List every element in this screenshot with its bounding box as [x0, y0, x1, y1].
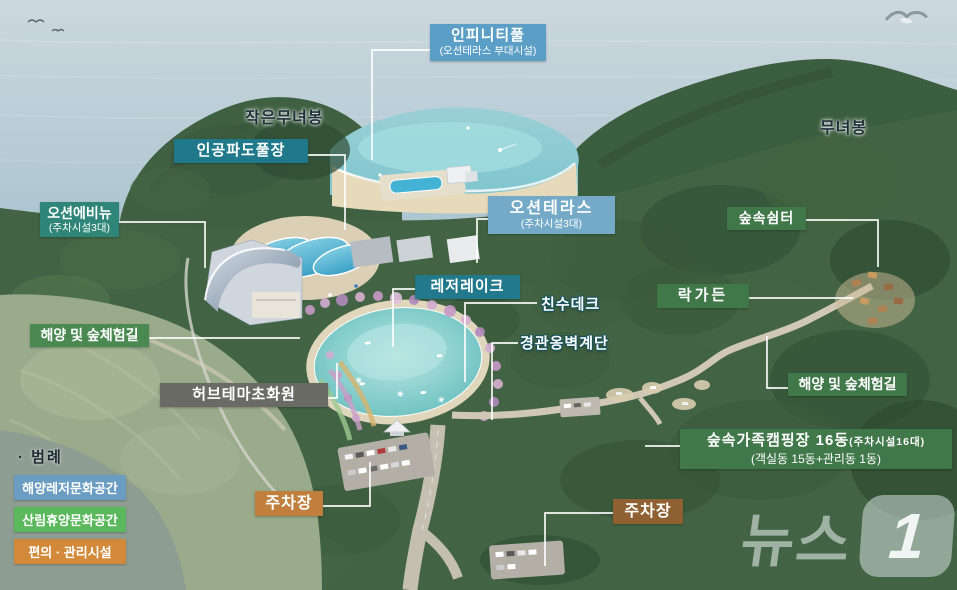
callout-rock-garden: 락가든 — [657, 284, 749, 308]
callout-forest-shelter-title: 숲속쉼터 — [733, 210, 800, 227]
legend-item-forest-recreation: 산림휴양문화공간 — [14, 507, 126, 532]
callout-wave-pool-title: 인공파도풀장 — [180, 142, 302, 160]
watermark-text: 뉴스 — [736, 494, 859, 578]
callout-wave-pool: 인공파도풀장 — [174, 139, 308, 163]
callout-family-camping-note: (주차시설16대) — [849, 436, 925, 448]
callout-parking-left: 주차장 — [255, 491, 323, 516]
legend-item-marine-leisure: 해양레저문화공간 — [14, 475, 126, 500]
callout-infinity-pool-title: 인피니티풀 — [436, 27, 540, 45]
label-waterside-deck: 친수데크 — [541, 293, 600, 314]
callout-sea-forest-trail-right: 해양 및 숲체험길 — [788, 373, 907, 396]
callout-family-camping-title-row: 숲속가족캠핑장 16동(주차시설16대) — [686, 432, 946, 450]
callout-ocean-terrace-title: 오션테라스 — [494, 199, 609, 218]
callout-sea-forest-trail-left-title: 해양 및 숲체험길 — [36, 327, 143, 344]
callout-ocean-avenue: 오션에비뉴 (주차시설3대) — [40, 202, 119, 237]
aerial-resort-map: 작은무녀봉 무녀봉 인피니티풀 (오션테라스 부대시설) 인공파도풀장 오션에비… — [0, 0, 957, 590]
legend-item-convenience-management: 편의 · 관리시설 — [14, 539, 126, 564]
callout-infinity-pool-subtitle: (오션테라스 부대시설) — [436, 45, 540, 58]
callout-ocean-terrace: 오션테라스 (주차시설3대) — [488, 196, 615, 234]
callout-parking-right-title: 주차장 — [619, 502, 677, 521]
callout-family-camping: 숲속가족캠핑장 16동(주차시설16대) (객실동 15동+관리동 1동) — [680, 429, 952, 469]
legend: · 범례 해양레저문화공간 산림휴양문화공간 편의 · 관리시설 — [14, 446, 126, 571]
peak-label-small-munyeobong: 작은무녀봉 — [245, 104, 324, 128]
watermark-badge-digit: 1 — [886, 499, 927, 573]
callout-rock-garden-title: 락가든 — [663, 287, 743, 305]
callout-parking-right: 주차장 — [613, 499, 683, 524]
watermark-badge: 1 — [858, 495, 956, 577]
callout-infinity-pool: 인피니티풀 (오션테라스 부대시설) — [430, 24, 546, 61]
callout-leisure-lake: 레저레이크 — [415, 275, 520, 299]
callout-family-camping-title: 숲속가족캠핑장 16동 — [707, 432, 849, 449]
callout-parking-left-title: 주차장 — [261, 494, 317, 513]
callout-forest-shelter: 숲속쉼터 — [727, 207, 806, 230]
callout-family-camping-subtitle: (객실동 15동+관리동 1동) — [686, 452, 946, 466]
callout-herb-garden: 허브테마초화원 — [160, 383, 328, 407]
news1-watermark: 뉴스 1 — [742, 494, 953, 578]
callout-herb-garden-title: 허브테마초화원 — [166, 386, 322, 404]
callout-ocean-avenue-subtitle: (주차시설3대) — [46, 222, 113, 235]
peak-label-munyeobong: 무녀봉 — [820, 114, 867, 138]
label-retaining-wall-stairs: 경관옹벽계단 — [520, 332, 609, 353]
callout-sea-forest-trail-right-title: 해양 및 숲체험길 — [794, 376, 901, 393]
callout-ocean-avenue-title: 오션에비뉴 — [46, 205, 113, 222]
callout-leisure-lake-title: 레저레이크 — [421, 278, 514, 296]
callout-ocean-terrace-subtitle: (주차시설3대) — [494, 218, 609, 231]
callout-sea-forest-trail-left: 해양 및 숲체험길 — [30, 324, 149, 347]
legend-title: · 범례 — [18, 446, 126, 467]
